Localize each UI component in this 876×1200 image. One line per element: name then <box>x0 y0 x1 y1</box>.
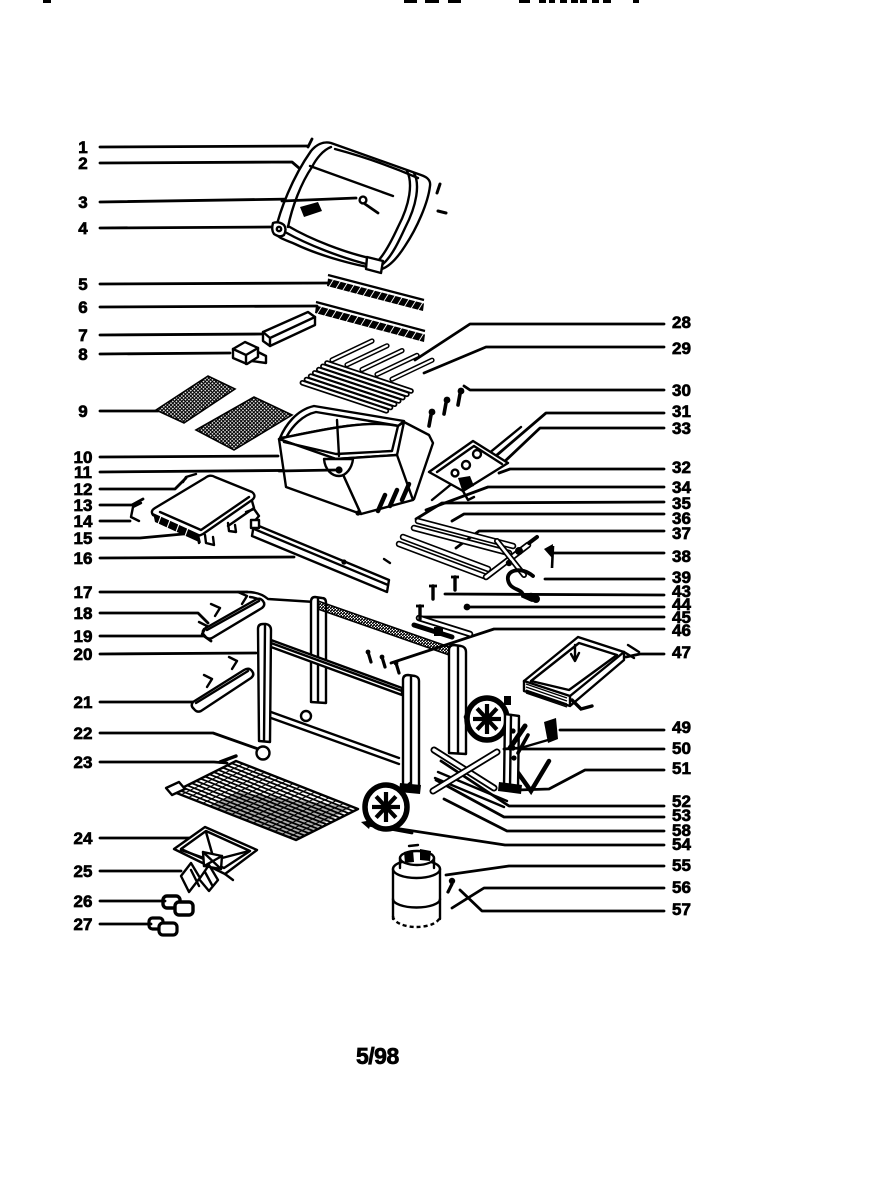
svg-text:54: 54 <box>672 835 691 854</box>
svg-text:18: 18 <box>74 604 93 623</box>
svg-text:37: 37 <box>672 524 691 543</box>
svg-text:15: 15 <box>74 529 93 548</box>
svg-text:33: 33 <box>672 419 691 438</box>
svg-text:27: 27 <box>74 915 93 934</box>
svg-text:5: 5 <box>78 275 87 294</box>
svg-text:17: 17 <box>74 583 93 602</box>
svg-text:26: 26 <box>74 892 93 911</box>
svg-text:19: 19 <box>74 627 93 646</box>
svg-text:55: 55 <box>672 856 691 875</box>
svg-text:51: 51 <box>672 759 691 778</box>
svg-text:49: 49 <box>672 718 691 737</box>
svg-text:28: 28 <box>672 313 691 332</box>
svg-text:57: 57 <box>672 900 691 919</box>
svg-text:2: 2 <box>78 154 87 173</box>
svg-text:5/98: 5/98 <box>356 1043 399 1069</box>
svg-text:32: 32 <box>672 458 691 477</box>
svg-text:22: 22 <box>74 724 93 743</box>
svg-text:50: 50 <box>672 739 691 758</box>
svg-text:38: 38 <box>672 547 691 566</box>
svg-text:30: 30 <box>672 381 691 400</box>
svg-text:47: 47 <box>672 643 691 662</box>
svg-text:9: 9 <box>78 402 87 421</box>
svg-text:6: 6 <box>78 298 87 317</box>
svg-text:56: 56 <box>672 878 691 897</box>
svg-text:4: 4 <box>78 219 88 238</box>
svg-text:7: 7 <box>78 326 87 345</box>
svg-text:25: 25 <box>74 862 93 881</box>
svg-text:21: 21 <box>74 693 93 712</box>
svg-text:23: 23 <box>74 753 93 772</box>
svg-text:8: 8 <box>78 345 87 364</box>
svg-text:16: 16 <box>74 549 93 568</box>
svg-text:29: 29 <box>672 339 691 358</box>
svg-text:24: 24 <box>74 829 93 848</box>
svg-text:20: 20 <box>74 645 93 664</box>
svg-text:46: 46 <box>672 621 691 640</box>
svg-text:3: 3 <box>78 193 87 212</box>
